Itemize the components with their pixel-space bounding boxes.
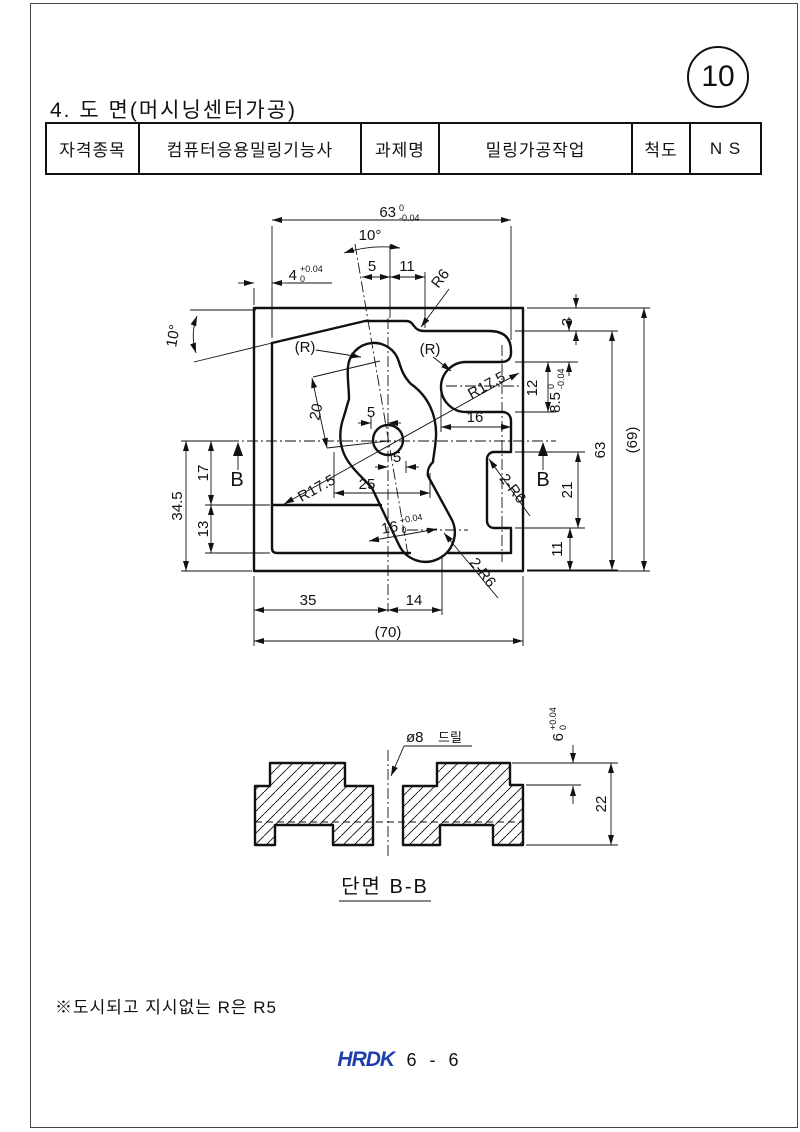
svg-text:R6: R6 xyxy=(428,266,453,292)
svg-text:5: 5 xyxy=(393,449,401,466)
dim-6-depth: 6 +0.04 0 xyxy=(512,707,618,804)
dim-34-5: 34.5 xyxy=(169,441,252,571)
svg-text:0: 0 xyxy=(399,203,404,213)
svg-text:0: 0 xyxy=(558,725,568,730)
svg-text:10°: 10° xyxy=(359,227,382,244)
svg-text:R17.5: R17.5 xyxy=(295,471,338,505)
svg-text:-0.04: -0.04 xyxy=(556,368,566,389)
svg-text:+0.04: +0.04 xyxy=(399,512,423,526)
dim-13: 13 xyxy=(195,505,270,553)
svg-text:63: 63 xyxy=(592,442,609,459)
svg-text:(69): (69) xyxy=(624,427,641,454)
svg-text:13: 13 xyxy=(195,521,212,538)
svg-text:20: 20 xyxy=(306,402,326,422)
svg-text:16: 16 xyxy=(467,409,484,426)
leader-2-r6-bottom: 2-R6 xyxy=(444,533,499,598)
dim-5-11-top: 5 11 xyxy=(362,258,425,328)
drill-text-label: 드릴 xyxy=(438,730,462,745)
svg-text:-0.04: -0.04 xyxy=(399,213,420,223)
svg-text:+0.04: +0.04 xyxy=(548,707,558,730)
svg-text:10°: 10° xyxy=(163,323,184,348)
svg-text:8.5: 8.5 xyxy=(547,392,564,413)
svg-text:35: 35 xyxy=(300,592,317,609)
svg-text:3: 3 xyxy=(559,318,576,326)
dim-22-thickness: 22 xyxy=(526,763,618,845)
leader-r-ref-right: (R) xyxy=(420,341,451,371)
svg-text:17: 17 xyxy=(195,465,212,482)
footer: HRDK 6 - 6 xyxy=(0,1048,800,1072)
dim-11-right: 11 xyxy=(549,528,570,571)
svg-text:21: 21 xyxy=(559,482,576,499)
svg-text:+0.04: +0.04 xyxy=(300,264,323,274)
svg-text:34.5: 34.5 xyxy=(169,491,186,520)
dim-16-slot: 16 +0.04 0 xyxy=(369,512,437,541)
svg-text:11: 11 xyxy=(399,258,415,275)
svg-text:12: 12 xyxy=(524,380,541,397)
svg-text:11: 11 xyxy=(549,541,566,557)
dim-4-left: 4 +0.04 0 xyxy=(238,264,332,338)
page-number: 6 - 6 xyxy=(407,1050,463,1070)
svg-text:단면 B-B: 단면 B-B xyxy=(341,875,429,898)
section-body-left xyxy=(255,763,373,845)
drill-dia-label: ø8 xyxy=(406,729,424,746)
section-view: ø8 드릴 6 +0.04 0 22 단면 B-B xyxy=(255,707,618,901)
dim-height-69: (69) xyxy=(527,308,650,571)
general-note: ※도시되고 지시없는 R은 R5 xyxy=(55,993,277,1018)
svg-text:16: 16 xyxy=(380,518,399,538)
svg-text:0: 0 xyxy=(546,384,556,389)
svg-text:25: 25 xyxy=(359,476,376,493)
drawing-canvas: 63 0 -0.04 10° 5 11 4 +0.04 0 R6 xyxy=(0,0,800,1132)
svg-text:(70): (70) xyxy=(375,624,402,641)
section-title: 단면 B-B xyxy=(339,875,431,901)
svg-text:14: 14 xyxy=(406,592,423,609)
svg-text:B: B xyxy=(230,469,243,491)
svg-text:5: 5 xyxy=(368,258,376,275)
dim-21: 21 xyxy=(515,452,585,528)
svg-text:6: 6 xyxy=(550,733,567,741)
dim-3: 3 xyxy=(515,294,618,345)
dim-25: 25 xyxy=(334,452,430,498)
section-arrow-b-right: B xyxy=(536,442,549,491)
svg-text:4: 4 xyxy=(289,267,297,284)
svg-text:(R): (R) xyxy=(420,341,441,358)
dim-63-text: 63 xyxy=(379,204,396,221)
svg-text:B: B xyxy=(536,469,549,491)
hrdk-logo: HRDK xyxy=(337,1048,394,1071)
svg-text:0: 0 xyxy=(401,525,408,536)
section-arrow-b-left: B xyxy=(230,442,243,491)
svg-text:2-R6: 2-R6 xyxy=(466,555,499,591)
dim-angle-left-10: 10° xyxy=(163,310,272,362)
svg-text:5: 5 xyxy=(367,404,375,421)
svg-text:22: 22 xyxy=(593,796,610,813)
dim-35-14: 35 14 xyxy=(254,555,442,646)
section-body-right xyxy=(403,763,523,845)
svg-text:0: 0 xyxy=(300,274,305,284)
svg-text:(R): (R) xyxy=(295,339,316,356)
leader-r6: R6 xyxy=(421,266,453,327)
top-view: 63 0 -0.04 10° 5 11 4 +0.04 0 R6 xyxy=(163,203,650,646)
